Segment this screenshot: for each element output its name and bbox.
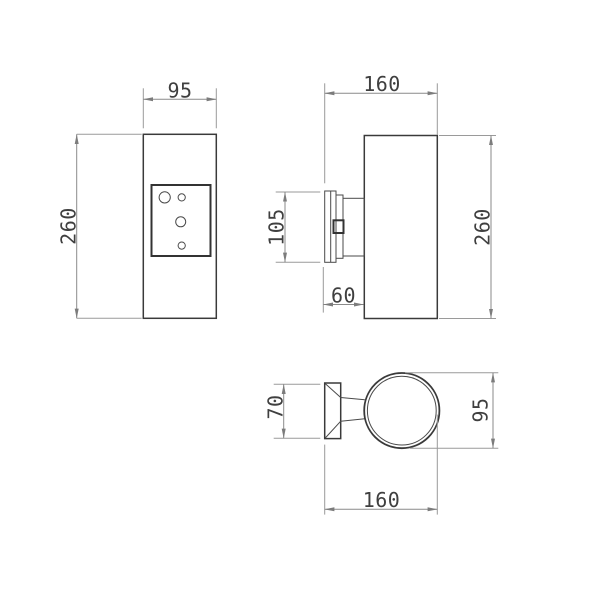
technical-drawing-page: 95 260 160 105: [0, 0, 600, 600]
dim-side-bracket-height: 105: [265, 192, 321, 262]
dim-side-height: 260: [439, 136, 496, 319]
dim-side-width: 160: [325, 72, 438, 183]
dim-front-width: 95: [143, 79, 216, 129]
plate-hole-large: [159, 192, 170, 203]
dim-side-bracket-depth-label: 60: [331, 284, 356, 308]
plate-hole-middle: [176, 217, 186, 227]
side-body-outline: [364, 136, 437, 319]
dim-top-width: 160: [325, 415, 438, 515]
front-mounting-plate: [152, 185, 211, 256]
dim-side-bracket-depth: 60: [323, 267, 363, 313]
dim-front-width-label: 95: [167, 79, 192, 103]
dim-top-bracket-width-label: 70: [264, 394, 288, 419]
side-bracket-arm: [343, 198, 364, 256]
dim-side-bracket-height-label: 105: [265, 208, 289, 246]
dim-side-height-label: 260: [471, 208, 495, 246]
top-body-inner-circle: [367, 376, 436, 445]
dim-front-height-label: 260: [57, 207, 81, 245]
plate-hole-bottom: [178, 242, 185, 249]
dim-top-bracket-width: 70: [264, 384, 321, 438]
top-taper-line-lower: [325, 421, 340, 438]
technical-drawing-canvas: 95 260 160 105: [0, 0, 600, 600]
front-view: 95 260: [57, 79, 217, 319]
dim-top-width-label: 160: [363, 488, 401, 512]
side-clip-detail: [334, 220, 344, 233]
plate-hole-small-top: [178, 194, 185, 201]
dim-side-width-label: 160: [363, 72, 401, 96]
top-body-outer-circle: [364, 373, 439, 448]
dim-top-diameter: 95: [405, 373, 498, 449]
side-view: 160 105 60 260: [265, 72, 497, 319]
top-taper-line-upper: [325, 384, 340, 398]
top-view: 70 95 160: [264, 373, 499, 515]
side-bracket-mid: [336, 195, 343, 258]
top-neck-line-upper: [341, 398, 365, 400]
dim-top-diameter-label: 95: [469, 397, 493, 422]
dim-front-height: 260: [57, 134, 142, 318]
top-neck-line-lower: [341, 419, 365, 421]
